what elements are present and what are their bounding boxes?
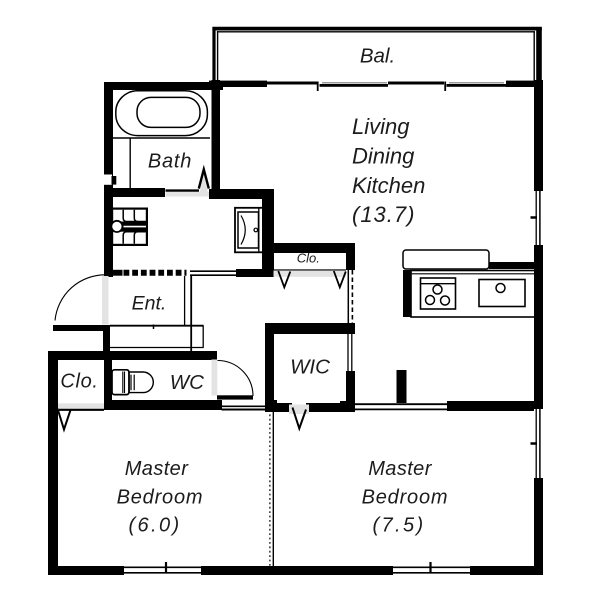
svg-text:Clo.: Clo. xyxy=(60,371,98,393)
svg-text:Ent.: Ent. xyxy=(132,293,167,315)
svg-text:Master: Master xyxy=(368,458,432,480)
svg-text:Clo.: Clo. xyxy=(297,251,320,266)
svg-text:Master: Master xyxy=(125,458,189,480)
svg-text:Bedroom: Bedroom xyxy=(362,487,449,509)
svg-text:WC: WC xyxy=(170,371,204,394)
svg-text:WIC: WIC xyxy=(290,356,330,379)
svg-text:Kitchen: Kitchen xyxy=(352,173,425,198)
svg-text:Bal.: Bal. xyxy=(360,45,395,68)
svg-text:Dining: Dining xyxy=(352,144,415,169)
svg-text:Living: Living xyxy=(352,114,410,139)
svg-text:Bedroom: Bedroom xyxy=(117,487,204,509)
svg-text:(7.5): (7.5) xyxy=(372,515,425,537)
svg-text:(6.0): (6.0) xyxy=(128,515,181,537)
svg-text:Bath: Bath xyxy=(148,151,192,173)
svg-text:(13.7): (13.7) xyxy=(352,202,415,227)
